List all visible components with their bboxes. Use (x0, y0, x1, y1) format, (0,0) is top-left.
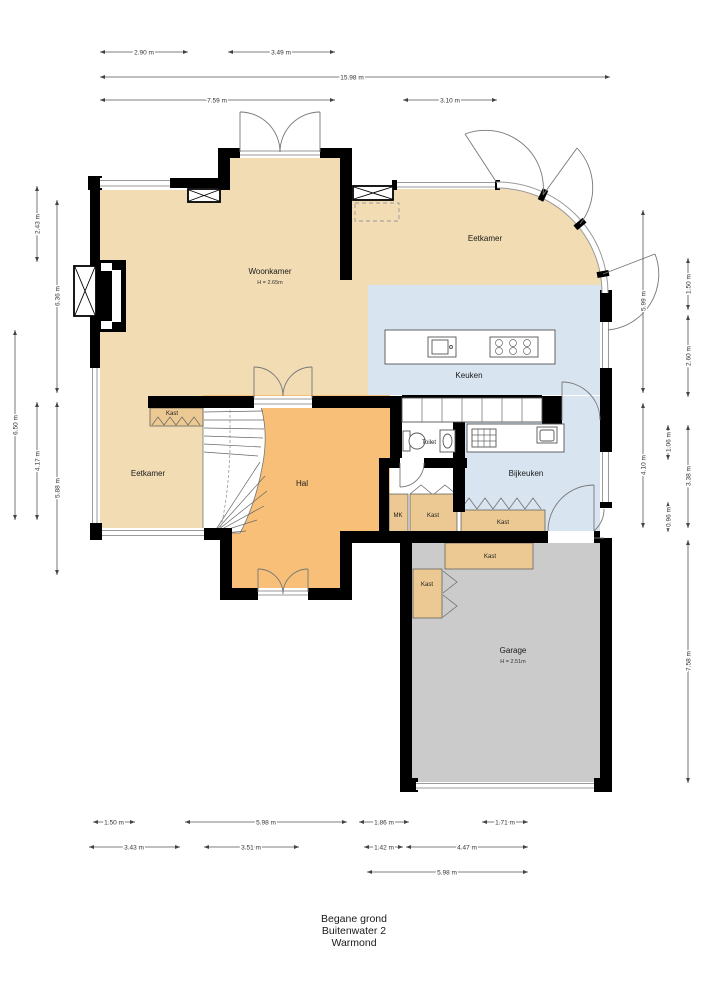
dimension-label: 4.17 m (35, 451, 42, 471)
dimension-label: 1.42 m (374, 845, 394, 852)
dimensions-right: 5.99 m 1.50 m 2.60 m 4.10 m 1.06 m 3.38 … (641, 210, 693, 783)
dimension: 3.43 m (89, 845, 180, 852)
dimension: 5.98 m (185, 820, 347, 827)
dimension: 2.43 m (35, 186, 42, 262)
dimension-label: 6.50 m (13, 415, 20, 435)
window-eetkamer-top (397, 181, 495, 189)
dimension-label: 7.59 m (207, 98, 227, 105)
dimension: 3.49 m (228, 50, 335, 57)
dimension-label: 1.06 m (666, 432, 673, 452)
dimension-label: 2.90 m (134, 50, 154, 57)
dimension-label: 3.10 m (440, 98, 460, 105)
title-line-2: Buitenwater 2 (322, 925, 386, 937)
room-label-kast-hal: Kast (427, 513, 439, 519)
dimension: 4.17 m (35, 402, 42, 520)
window-left-wall (90, 368, 100, 523)
dimension: 4.47 m (406, 845, 528, 852)
dimension: 3.10 m (403, 98, 497, 105)
room-label-kast-bijkeuken: Kast (497, 520, 509, 526)
dimension: 7.59 m (100, 98, 335, 105)
bifold-door-symbol (410, 485, 456, 494)
room-label-bijkeuken: Bijkeuken (509, 469, 544, 478)
dimension-label: 5.98 m (437, 870, 457, 877)
dimension: 7.58 m (686, 540, 693, 783)
dimension: 6.36 m (55, 200, 62, 393)
dimension-label: 6.36 m (55, 286, 62, 306)
window-top-left (100, 178, 170, 188)
dimension: 2.90 m (100, 50, 188, 57)
room-label-keuken: Keuken (455, 371, 482, 380)
dimension-label: 3.49 m (271, 50, 291, 57)
dimension-label: 1.50 m (104, 820, 124, 827)
dimension: 1.71 m (482, 820, 528, 827)
room-label-eetkamer-left: Eetkamer (131, 469, 166, 478)
room-label-mk: MK (394, 513, 403, 519)
dimension: 1.50 m (93, 820, 135, 827)
room-label-hal: Hal (296, 479, 308, 488)
dimension: 2.60 m (686, 315, 693, 397)
dimension: 5.98 m (367, 870, 528, 877)
dimensions-bottom: 1.50 m 5.98 m 1.86 m 1.71 m 3.43 m 3.51 … (89, 820, 528, 877)
bijkeuken-counter (467, 424, 564, 452)
room-label-kast-garage-top: Kast (484, 554, 496, 560)
dimension-label: 0.96 m (666, 507, 673, 527)
room-label-kast-garage-left: Kast (421, 582, 433, 588)
window-kitchen-right (600, 322, 612, 368)
room-label-eetkamer-top: Eetkamer (468, 234, 503, 243)
room-label-toilet: Toilet (422, 440, 436, 446)
dimension: 4.10 m (641, 403, 648, 528)
toilet-door (400, 458, 424, 487)
dimension: 1.06 m (666, 425, 673, 460)
dimension: 1.86 m (359, 820, 409, 827)
dimension: 1.50 m (686, 258, 693, 310)
dimension: 5.99 m (641, 210, 648, 393)
room-label-garage: Garage (500, 646, 527, 655)
title-line-1: Begane grond (321, 913, 387, 925)
dimension-label: 2.60 m (686, 346, 693, 366)
room-label-kast-stairs: Kast (166, 411, 178, 417)
title-line-3: Warmond (331, 937, 376, 949)
dimension-label: 4.47 m (457, 845, 477, 852)
dimension-label: 1.71 m (495, 820, 515, 827)
dimension-label: 3.51 m (241, 845, 261, 852)
dimension: 6.50 m (13, 330, 20, 520)
room-label-woonkamer: Woonkamer (249, 267, 292, 276)
dimension: 5.88 m (55, 402, 62, 575)
dimension-label: 2.43 m (35, 214, 42, 234)
garage-door (416, 782, 594, 790)
double-door-top (240, 112, 320, 158)
dimension: 3.51 m (204, 845, 299, 852)
dimensions-left: 2.43 m 6.36 m 6.50 m 4.17 m 5.88 m (13, 186, 62, 575)
title-block: Begane grond Buitenwater 2 Warmond (321, 913, 387, 949)
kitchen-island (385, 330, 555, 364)
floor-plan-page: Woonkamer H = 2.65m Eetkamer Keuken Toil… (0, 0, 707, 1000)
dimension: 1.42 m (364, 845, 403, 852)
dimension-label: 5.98 m (256, 820, 276, 827)
dimension-label: 1.50 m (686, 274, 693, 294)
dimension-label: 1.86 m (374, 820, 394, 827)
dimension-label: 3.43 m (124, 845, 144, 852)
dimension-label: 5.88 m (55, 478, 62, 498)
dimension: 15.98 m (100, 75, 610, 82)
dimension-label: 7.58 m (686, 651, 693, 671)
dimension: 0.96 m (666, 502, 673, 532)
dimensions-top: 2.90 m 3.49 m 15.98 m 7.59 m 3.10 m (100, 50, 610, 105)
room-height-woonkamer: H = 2.65m (257, 280, 283, 286)
kitchen-counter (402, 398, 542, 422)
dimension-label: 15.98 m (340, 75, 364, 82)
kast-garage-left-box (413, 569, 442, 618)
room-height-garage: H = 2.51m (500, 659, 526, 665)
dimension-label: 3.38 m (686, 466, 693, 486)
window-eetkamer-bottom (102, 528, 204, 538)
window-bijkeuken-right (600, 452, 612, 502)
dimension-label: 5.99 m (641, 291, 648, 311)
dimension-label: 4.10 m (641, 455, 648, 475)
dimension: 3.38 m (686, 425, 693, 528)
floor-plan-canvas: Woonkamer H = 2.65m Eetkamer Keuken Toil… (0, 0, 707, 1000)
